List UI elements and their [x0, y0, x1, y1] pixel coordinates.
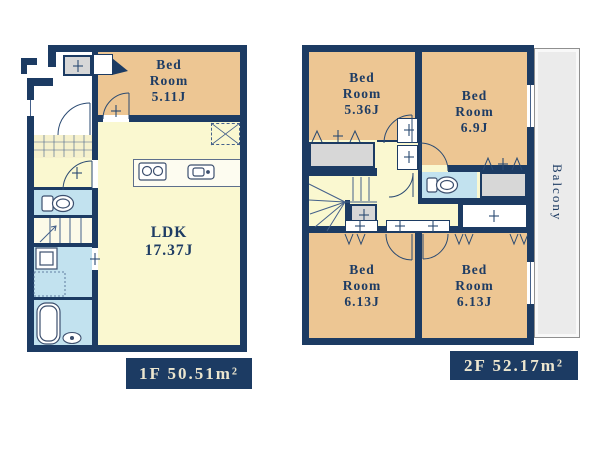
bedroom-69-label: Bed Room 6.9J	[422, 88, 527, 136]
kitchen-counter	[133, 159, 240, 187]
bedroom-1f-label: Bed Room 5.11J	[98, 57, 240, 105]
porch-mark-v	[21, 58, 27, 74]
floorplan-canvas: Balcony	[0, 0, 600, 450]
bedroom-613l-label: Bed Room 6.13J	[309, 262, 415, 310]
floor2-area-label: 2F 52.17m²	[450, 351, 578, 380]
wall-2f-mid-bottom	[415, 233, 422, 338]
toilet-2f-floor	[422, 172, 477, 198]
bathroom-floor	[34, 300, 92, 345]
toilet-1f-floor	[34, 190, 92, 217]
stairs-1f-floor	[34, 217, 92, 245]
bedroom-613r-label: Bed Room 6.13J	[422, 262, 527, 310]
refrigerator-space	[211, 123, 240, 145]
wall-toilet-top	[34, 187, 92, 190]
wall-2f-bottom	[302, 338, 534, 345]
ldk-label: LDK 17.37J	[98, 224, 240, 261]
balcony-label: Balcony	[549, 164, 565, 221]
bedroom-536-label: Bed Room 5.36J	[309, 70, 415, 118]
wall-2f-left	[302, 45, 309, 345]
wall-1f-left	[27, 78, 34, 352]
wall-1f-bottom	[27, 345, 247, 352]
door-gap-hall	[92, 160, 98, 188]
window-613r-balcony	[527, 262, 534, 304]
floor1-area-label: 1F 50.51m²	[126, 358, 252, 389]
closet-69	[480, 172, 527, 198]
door-gap-bedroom-1f	[103, 115, 129, 122]
closet-hall-right	[462, 204, 527, 228]
balcony: Balcony	[534, 48, 580, 338]
wall-1f-right	[240, 45, 247, 352]
wall-bath-top	[34, 297, 92, 300]
window-1f-left	[27, 100, 34, 116]
wall-stairs-bottom	[34, 243, 92, 247]
shoe-closet	[63, 55, 92, 76]
wall-entry-connector	[27, 78, 53, 86]
wall-entry-stub	[48, 45, 56, 67]
entrance-tile	[34, 135, 92, 158]
washroom-floor	[34, 245, 92, 297]
wall-toilet-bottom	[34, 215, 92, 218]
wall-under-closet536	[309, 168, 377, 176]
wall-69-bottom	[448, 165, 527, 172]
door-box-upper	[397, 118, 418, 143]
window-69-balcony	[527, 85, 534, 127]
wall-1f-top	[48, 45, 247, 52]
door-box-lower	[397, 145, 418, 170]
wall-2f-mid-top	[415, 45, 422, 120]
closet-bar-left	[345, 220, 378, 232]
closet-bar-center	[386, 220, 450, 232]
closet-536	[309, 142, 375, 168]
